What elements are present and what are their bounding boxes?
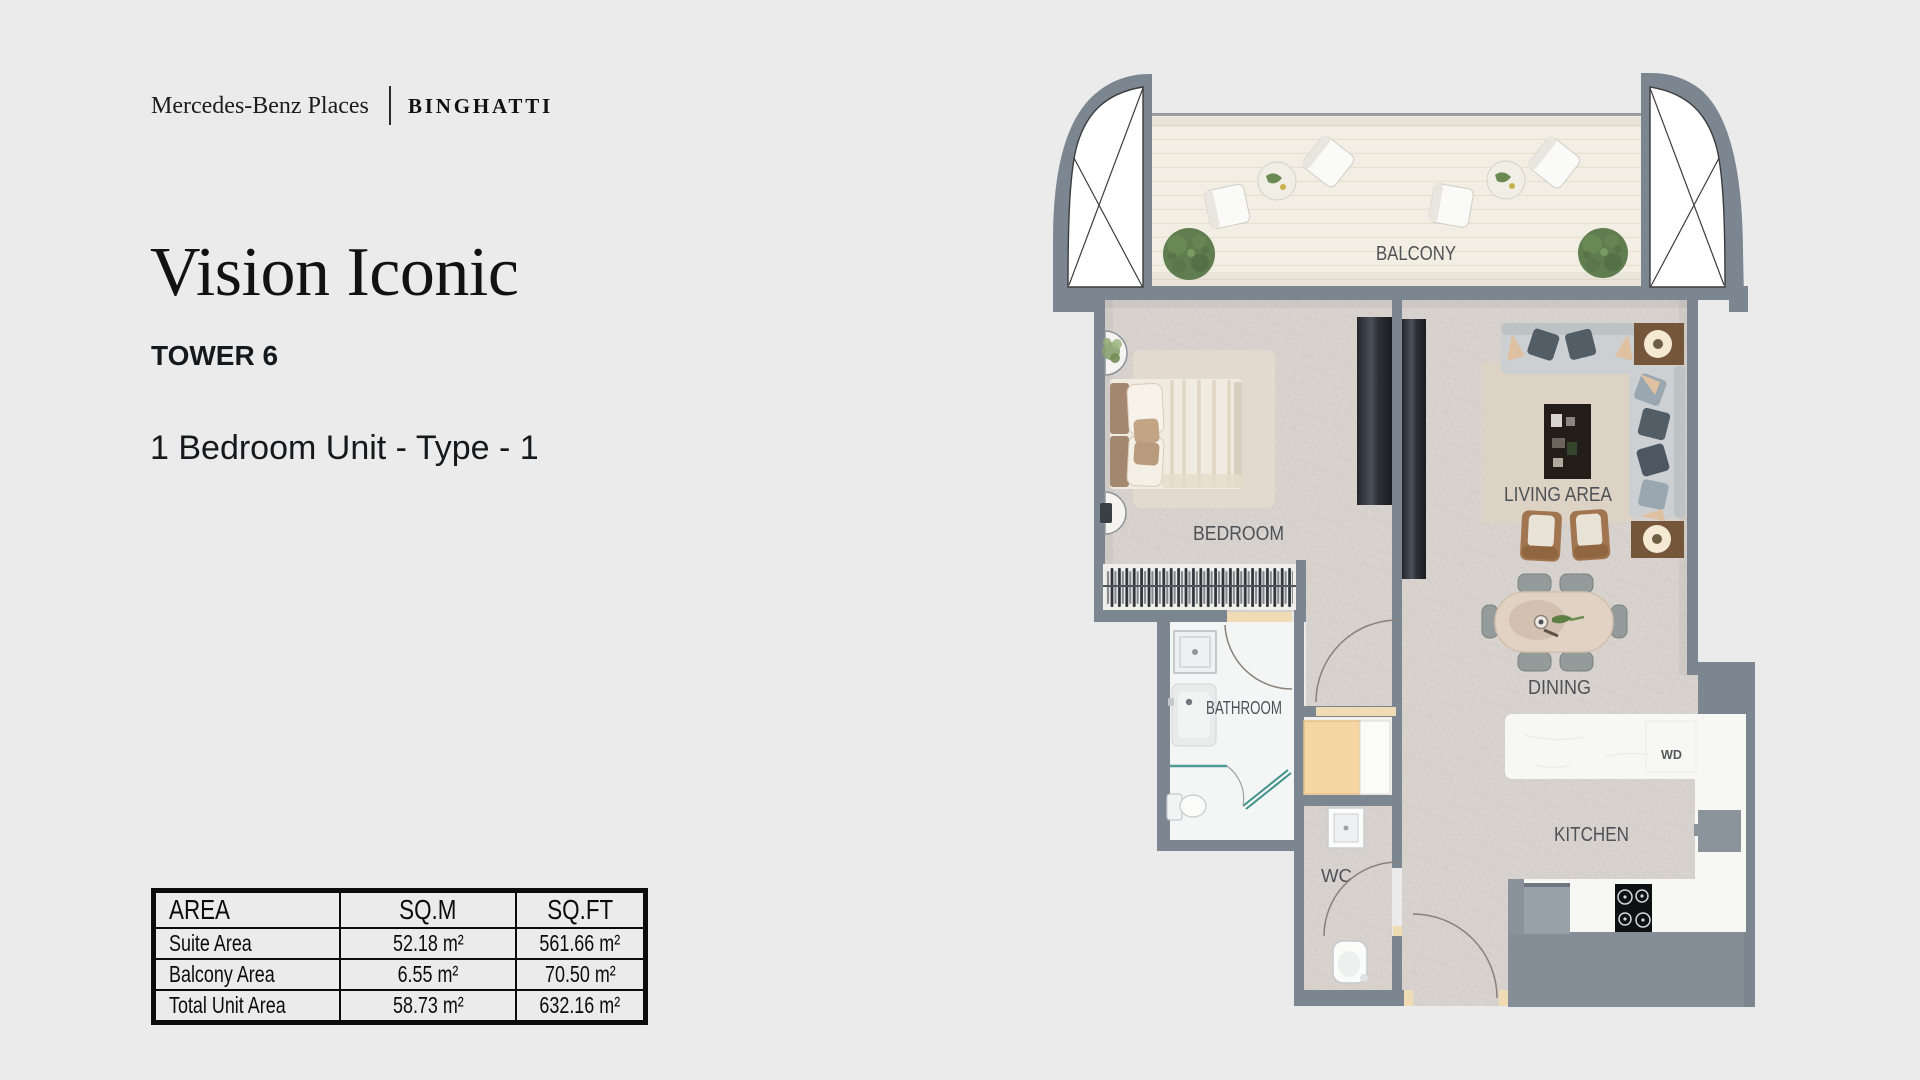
svg-text:BEDROOM: BEDROOM [1193,523,1284,545]
svg-text:WD: WD [1661,747,1682,762]
svg-text:BALCONY: BALCONY [1376,243,1456,265]
svg-text:LIVING AREA: LIVING AREA [1504,484,1613,506]
svg-text:DINING: DINING [1528,677,1591,699]
svg-text:KITCHEN: KITCHEN [1554,824,1629,846]
svg-text:BATHROOM: BATHROOM [1206,698,1282,718]
